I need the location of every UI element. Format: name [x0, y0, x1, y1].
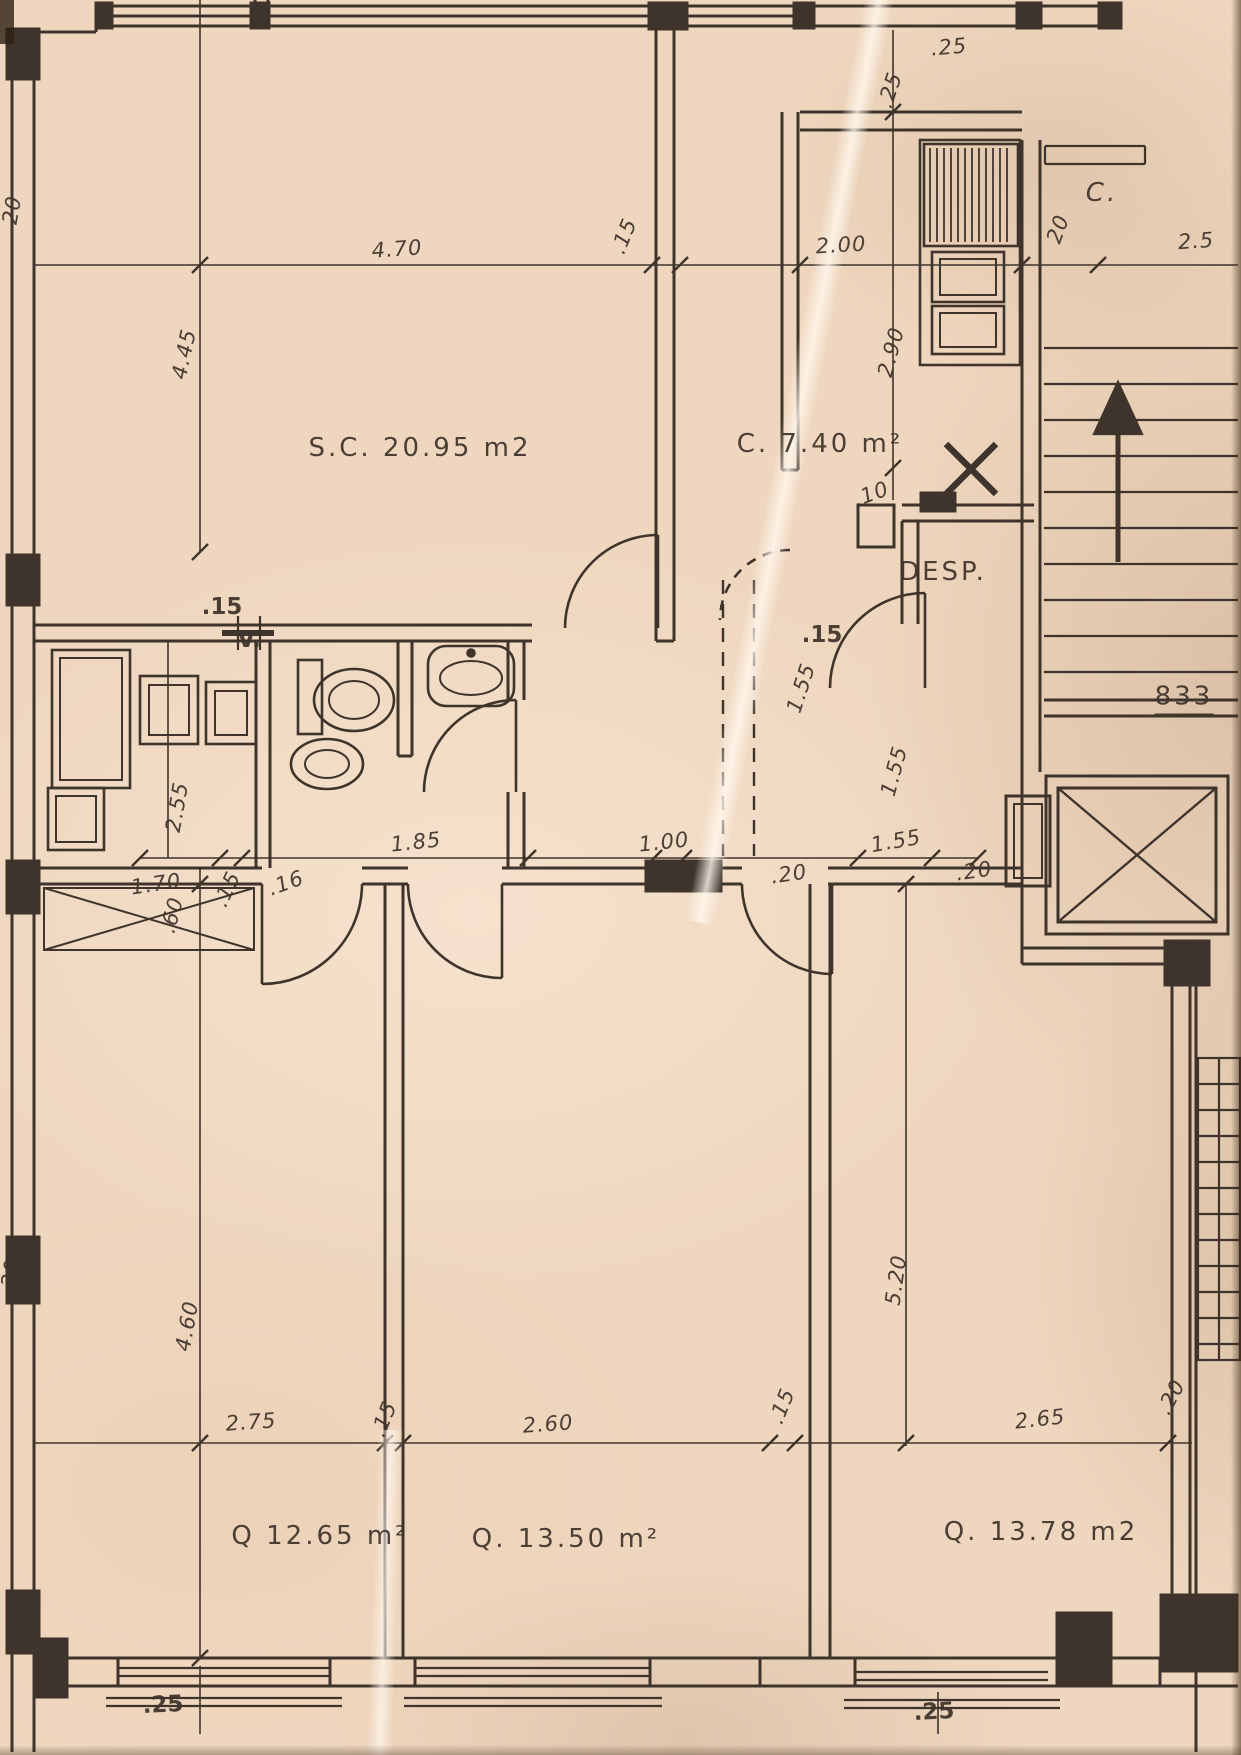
- dim-label: 1.55: [876, 743, 912, 798]
- dim-label: 2.60: [522, 1410, 574, 1437]
- dim-label: .60: [156, 894, 189, 935]
- room-label-hall: C. 7.40 m²: [737, 429, 904, 459]
- room-label-bedroom-1: Q 12.65 m²: [231, 1521, 408, 1551]
- dim-label: .15: [606, 215, 642, 258]
- dim-label: 1.70: [129, 869, 183, 900]
- dim-label: 2.90: [873, 324, 909, 379]
- dim-label: .15: [208, 867, 245, 910]
- dim-label: 2.65: [1014, 1404, 1067, 1433]
- dim-label: 1.55: [869, 825, 923, 857]
- dim-label: .20: [769, 860, 808, 889]
- dim-label: .20: [1152, 1375, 1190, 1418]
- dim-label: .25: [873, 69, 907, 111]
- dim-label: .16: [265, 865, 307, 900]
- dim-label: 5.20: [881, 1253, 912, 1307]
- dim-label: 4.70: [371, 235, 423, 262]
- dim-label: 4.45: [167, 327, 201, 382]
- dim-label: 1.85: [390, 827, 443, 856]
- room-label-bedroom-3: Q. 13.78 m2: [944, 1517, 1139, 1547]
- labels-layer: S.C. 20.95 m2C. 7.40 m²DESP.C.Q 12.65 m²…: [0, 0, 1241, 1755]
- dim-label: .25: [913, 1698, 955, 1726]
- room-label-bedroom-2: Q. 13.50 m²: [472, 1524, 660, 1554]
- room-label-living: S.C. 20.95 m2: [308, 433, 531, 463]
- dim-label: .15: [366, 1398, 402, 1441]
- dim-label: 20: [0, 194, 26, 226]
- dim-label: 1.00: [638, 827, 691, 856]
- dim-label: 20: [1042, 211, 1074, 246]
- dim-label: .10: [850, 476, 892, 511]
- dim-label: 1.55: [782, 660, 821, 716]
- dim-label: 2.00: [815, 232, 867, 259]
- dim-label: .25: [142, 1691, 184, 1719]
- dim-label: .15: [764, 1385, 800, 1428]
- dim-label: 2.55: [161, 780, 193, 834]
- dim-label: 2.5: [1177, 228, 1215, 254]
- room-label-pantry: DESP.: [899, 557, 987, 587]
- room-label-level-mark: 833: [1155, 682, 1214, 717]
- dim-label: V.: [237, 627, 261, 653]
- dim-label: .20: [954, 857, 993, 886]
- dim-label: .25: [930, 33, 968, 60]
- floorplan-sheet: S.C. 20.95 m2C. 7.40 m²DESP.C.Q 12.65 m²…: [0, 0, 1241, 1755]
- dim-label: 2.75: [225, 1408, 277, 1435]
- room-label-stair-landing: C.: [1086, 178, 1118, 208]
- dim-label: 4.60: [171, 1299, 203, 1353]
- dim-label: .15: [202, 594, 243, 620]
- dim-label: .20: [0, 1257, 25, 1297]
- dim-label: .15: [802, 622, 843, 648]
